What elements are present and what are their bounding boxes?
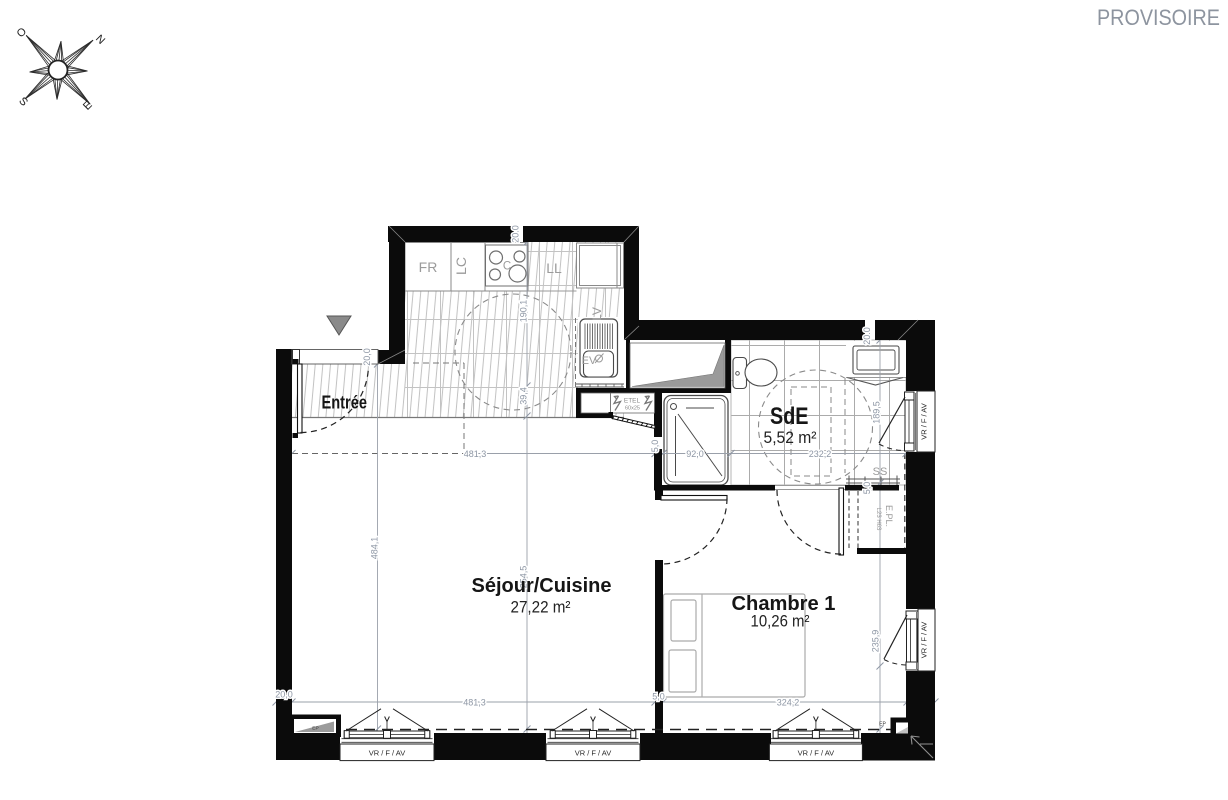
svg-text:VR / F / AV: VR / F / AV [575, 749, 612, 758]
svg-text:ETEL: ETEL [624, 398, 641, 405]
svg-text:VR / F / AV: VR / F / AV [798, 749, 835, 758]
svg-text:LC: LC [453, 257, 469, 275]
svg-text:E: E [81, 99, 95, 113]
svg-text:EP: EP [879, 722, 886, 728]
svg-text:LL: LL [546, 260, 562, 276]
svg-text:60x25: 60x25 [625, 406, 640, 412]
svg-text:5,0: 5,0 [862, 482, 872, 495]
svg-text:324,2: 324,2 [777, 698, 800, 708]
svg-text:SdE: SdE [770, 403, 809, 430]
svg-text:20,0: 20,0 [362, 348, 372, 366]
svg-text:190,1: 190,1 [519, 300, 529, 323]
svg-text:20.0: 20.0 [862, 327, 872, 345]
svg-text:5,0: 5,0 [652, 692, 665, 702]
svg-text:235,9: 235,9 [871, 630, 881, 653]
svg-text:VR / F / AV: VR / F / AV [920, 403, 929, 440]
svg-text:5,52 m²: 5,52 m² [764, 429, 817, 447]
svg-text:232,2: 232,2 [809, 449, 832, 459]
svg-text:39,4: 39,4 [519, 387, 529, 405]
svg-text:189,5: 189,5 [872, 401, 882, 424]
svg-text:EV: EV [582, 355, 597, 367]
svg-text:481,3: 481,3 [463, 698, 486, 708]
svg-text:EP: EP [312, 726, 318, 732]
svg-text:O: O [15, 25, 30, 40]
svg-text:FR: FR [419, 259, 438, 275]
svg-text:92,0: 92,0 [686, 449, 704, 459]
svg-text:N: N [93, 33, 107, 47]
svg-text:L23 H63: L23 H63 [875, 508, 881, 531]
svg-text:E.PL.: E.PL. [884, 505, 894, 527]
svg-text:20.0: 20.0 [511, 225, 521, 243]
svg-text:5,0: 5,0 [650, 440, 660, 453]
svg-text:Entrée: Entrée [322, 393, 368, 413]
svg-text:Séjour/Cuisine: Séjour/Cuisine [472, 574, 612, 597]
svg-text:481,3: 481,3 [464, 449, 487, 459]
svg-text:20,0: 20,0 [275, 690, 293, 700]
svg-text:S: S [16, 95, 30, 109]
svg-text:484,1: 484,1 [370, 537, 380, 560]
svg-text:LV: LV [590, 307, 604, 321]
svg-text:10,26 m²: 10,26 m² [751, 613, 810, 631]
svg-text:C: C [503, 261, 511, 273]
svg-text:VR / F / AV: VR / F / AV [920, 622, 929, 659]
svg-text:27,22 m²: 27,22 m² [511, 599, 571, 617]
svg-text:VR / F / AV: VR / F / AV [369, 749, 406, 758]
svg-text:PROVISOIRE: PROVISOIRE [1097, 5, 1220, 30]
svg-text:SS: SS [873, 466, 888, 478]
